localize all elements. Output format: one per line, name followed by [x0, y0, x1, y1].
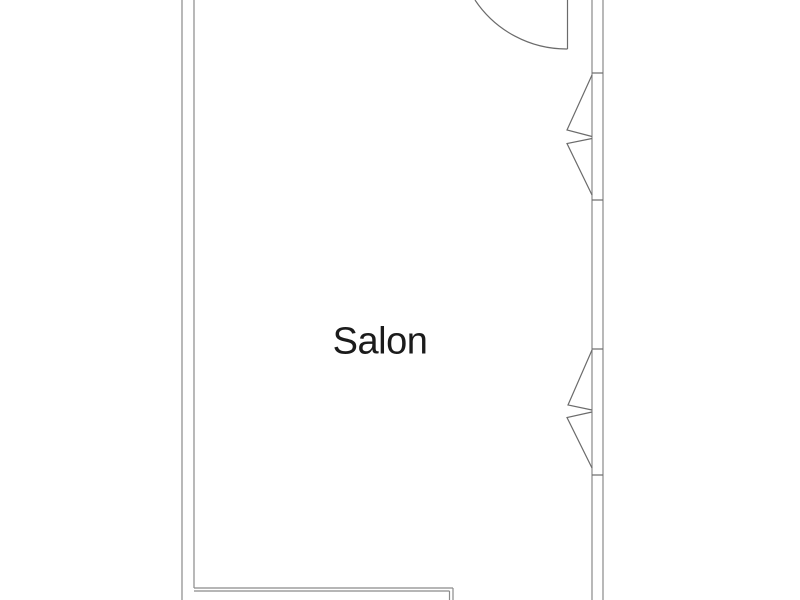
floor-plan-drawing	[0, 0, 800, 600]
floor-plan-page: Salon	[0, 0, 800, 600]
window-bottom-window-sash-triangle	[567, 412, 592, 468]
room-label: Salon	[333, 321, 428, 364]
window-top-window-sash-triangle	[567, 139, 592, 196]
door-swing-arc	[475, 0, 568, 49]
window-bottom-window-sash-triangle	[568, 350, 592, 410]
window-top-window-sash-triangle	[567, 75, 592, 137]
